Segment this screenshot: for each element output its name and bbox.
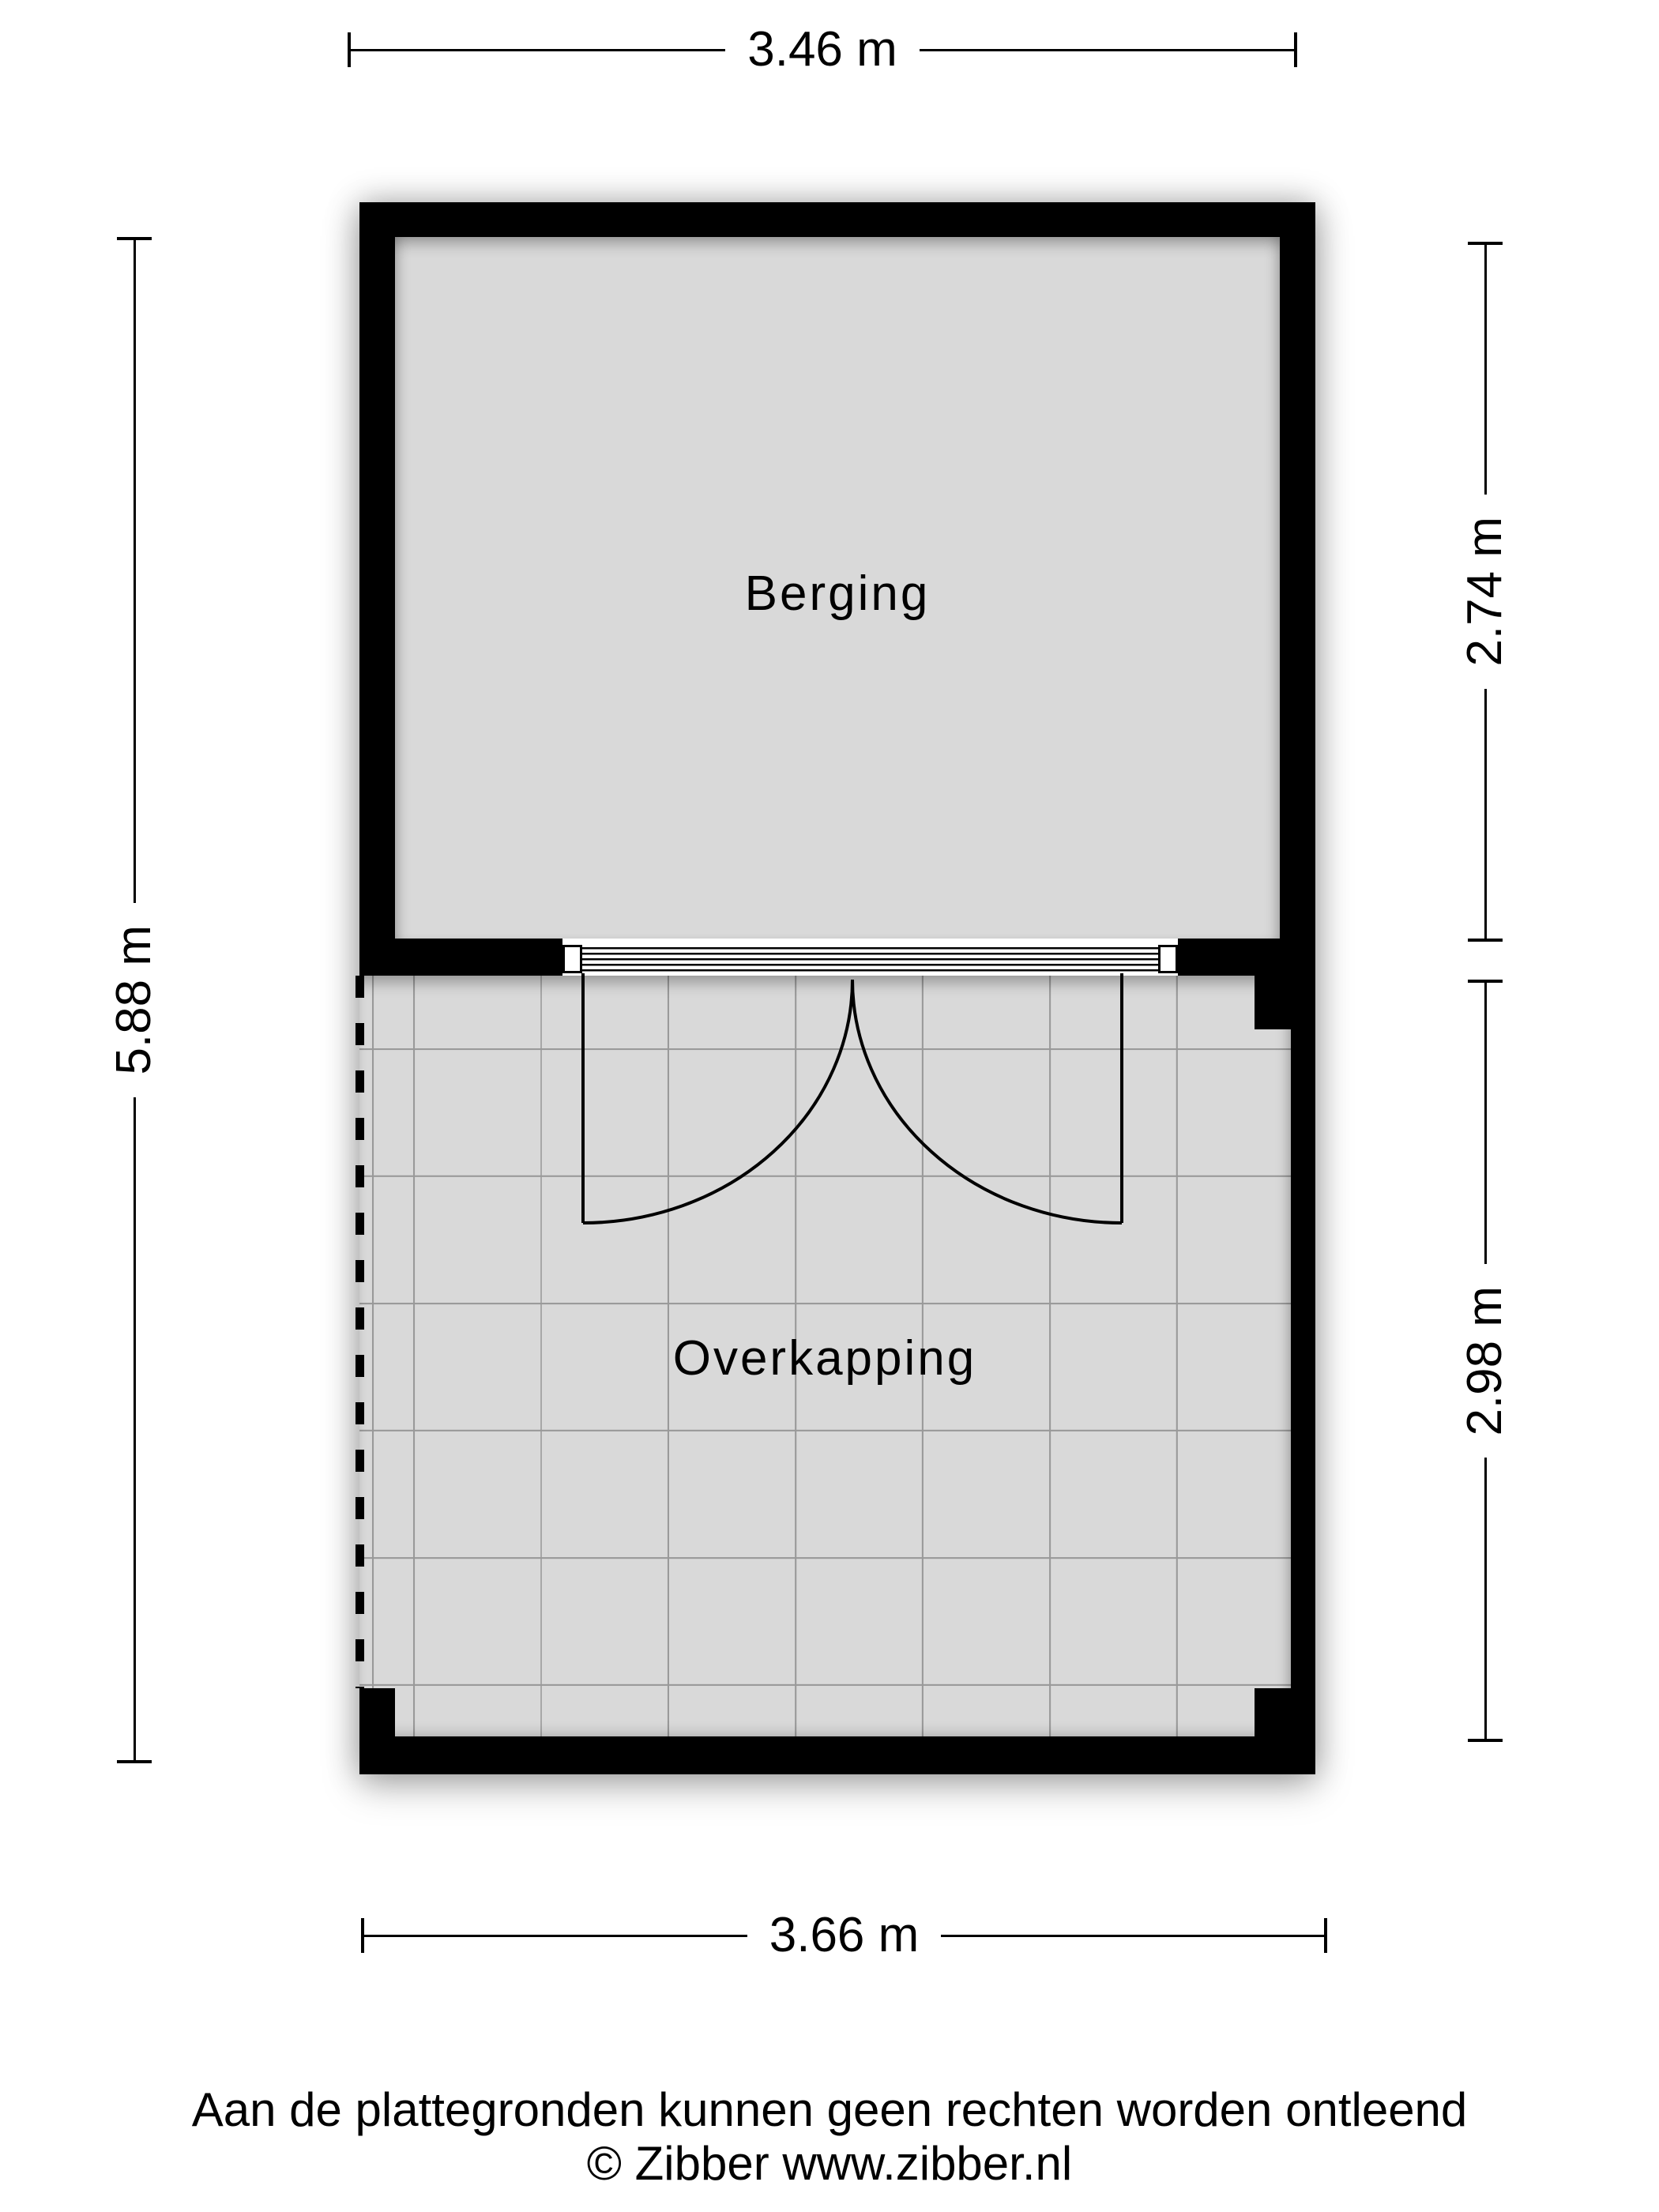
dimension-line-segment: [134, 1097, 136, 1760]
dimension-right-lower: 2.98 m: [1463, 980, 1507, 1742]
dimension-right-upper-label: 2.74 m: [1461, 517, 1510, 667]
dimension-line-segment: [351, 49, 725, 51]
dimension-tick: [1468, 939, 1503, 942]
wall-bottom: [359, 1736, 1315, 1774]
wall-stub-bottom-left: [359, 1688, 395, 1736]
dimension-line-segment: [1484, 1458, 1487, 1739]
room-label-overkapping: Overkapping: [588, 1332, 1062, 1386]
dimension-top-label: 3.46 m: [747, 25, 897, 74]
dimension-line-segment: [941, 1935, 1324, 1937]
wall-middle-right: [1178, 939, 1315, 976]
dimension-tick: [1468, 1739, 1503, 1742]
footer-disclaimer: Aan de plattegronden kunnen geen rechten…: [0, 2084, 1659, 2136]
dimension-left-label: 5.88 m: [110, 925, 159, 1075]
dimension-bottom-label: 3.66 m: [769, 1911, 920, 1960]
door-jamb-left: [562, 945, 582, 973]
dimension-tick: [1294, 32, 1297, 67]
dimension-line-segment: [920, 49, 1294, 51]
dimension-right-lower-label: 2.98 m: [1461, 1286, 1510, 1436]
sliding-door-track: [582, 947, 1158, 972]
wall-middle-left: [359, 939, 562, 976]
dimension-line-segment: [364, 1935, 747, 1937]
dimension-bottom: 3.66 m: [361, 1913, 1327, 1958]
door-jamb-right: [1158, 945, 1178, 973]
wall-notch-bottom-right: [1255, 1688, 1315, 1736]
wall-right-lower: [1291, 976, 1315, 1736]
dimension-line-segment: [1484, 245, 1487, 495]
dimension-tick: [1324, 1918, 1327, 1953]
dimension-line-segment: [134, 240, 136, 903]
dimension-line-segment: [1484, 983, 1487, 1264]
dimension-line-segment: [1484, 689, 1487, 939]
footer-copyright: © Zibber www.zibber.nl: [0, 2138, 1659, 2190]
floorplan-page: 3.46 m 5.88 m 2.74 m 2.98 m 3.66 m: [0, 0, 1659, 2212]
dimension-top: 3.46 m: [348, 28, 1297, 72]
dimension-tick: [117, 1760, 152, 1763]
room-label-berging: Berging: [600, 567, 1074, 621]
dimension-left: 5.88 m: [112, 237, 156, 1763]
dimension-right-upper: 2.74 m: [1463, 242, 1507, 942]
open-side-dashed-line: [355, 976, 364, 1688]
